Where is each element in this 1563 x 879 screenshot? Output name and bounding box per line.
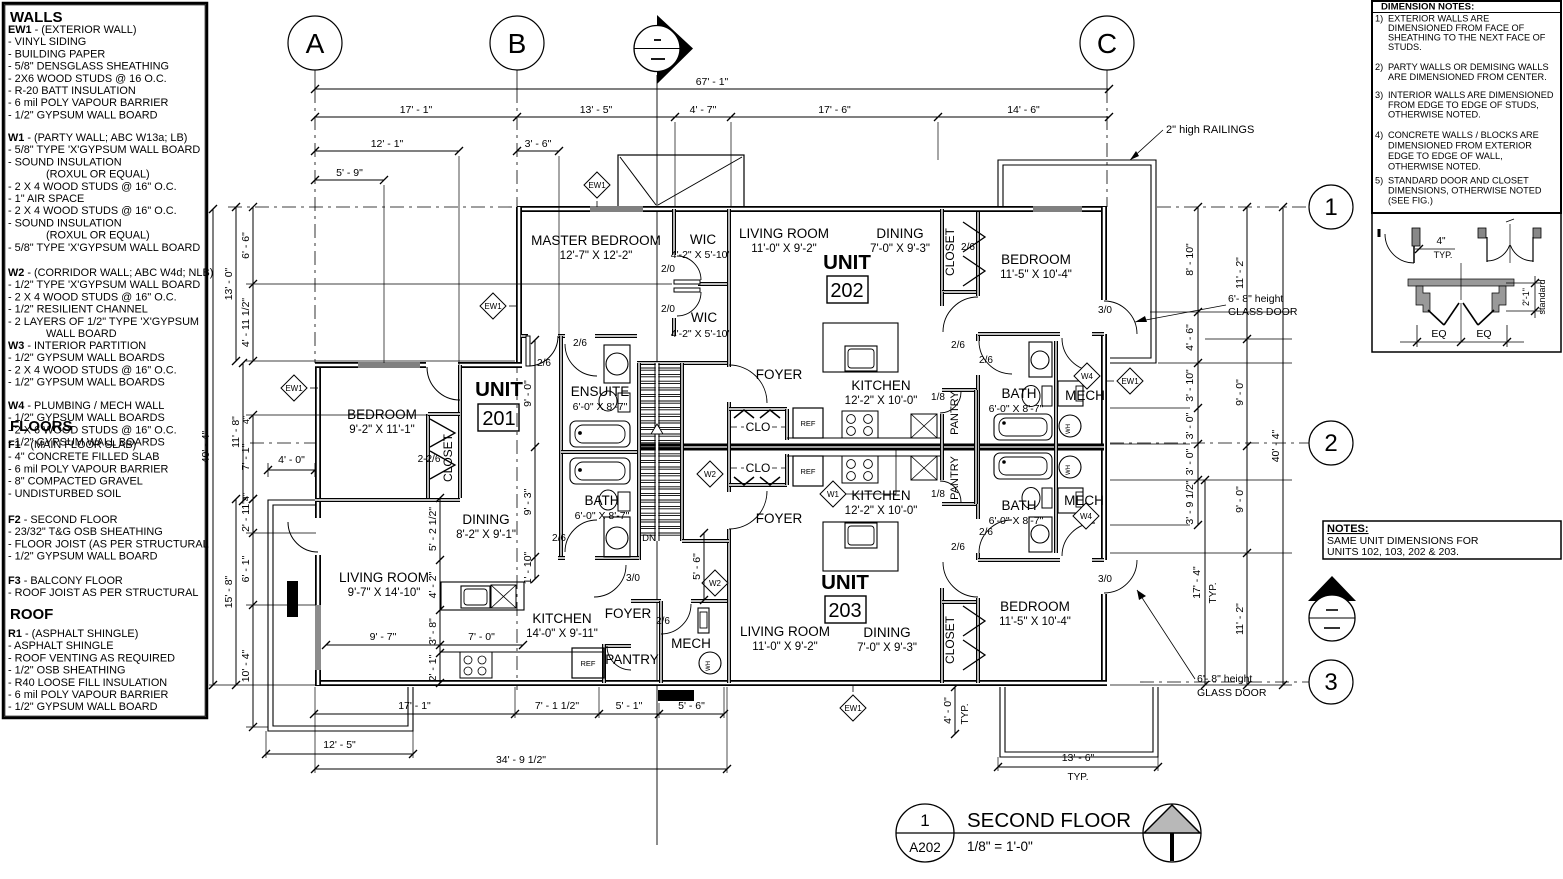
svg-text:- 2 X 4 WOOD STUDS @ 16" O.C.: - 2 X 4 WOOD STUDS @ 16" O.C. — [8, 364, 177, 376]
svg-text:1: 1 — [920, 811, 929, 830]
svg-text:- VINYL SIDING: - VINYL SIDING — [8, 36, 86, 48]
svg-text:3/0: 3/0 — [1098, 574, 1112, 585]
svg-text:- 5/8" DENSGLASS SHEATHING: - 5/8" DENSGLASS SHEATHING — [8, 61, 169, 73]
svg-text:9' - 7": 9' - 7" — [370, 631, 397, 643]
svg-text:3' - 6": 3' - 6" — [525, 138, 552, 150]
svg-text:1/8" = 1'-0": 1/8" = 1'-0" — [967, 839, 1033, 854]
svg-text:EDGE TO EDGE OF WALL,: EDGE TO EDGE OF WALL, — [1388, 151, 1503, 161]
svg-text:DINING: DINING — [462, 512, 509, 527]
svg-text:TYP.: TYP. — [1434, 250, 1453, 260]
svg-text:9' - 0": 9' - 0" — [1234, 486, 1246, 513]
svg-text:- SOUND INSULATION: - SOUND INSULATION — [8, 156, 122, 168]
svg-text:- 4" CONCRETE FILLED SLAB: - 4" CONCRETE FILLED SLAB — [8, 451, 160, 463]
svg-text:KITCHEN: KITCHEN — [851, 488, 910, 503]
svg-text:- 1/2" OSB SHEATHING: - 1/2" OSB SHEATHING — [8, 665, 125, 677]
svg-text:202: 202 — [830, 280, 863, 302]
svg-text:13' - 6": 13' - 6" — [1062, 752, 1095, 764]
svg-text:7' - 0": 7' - 0" — [468, 631, 495, 643]
svg-text:- 1/2" GYPSUM WALL BOARD: - 1/2" GYPSUM WALL BOARD — [8, 109, 158, 121]
svg-text:DIMENSIONED FROM FACE OF: DIMENSIONED FROM FACE OF — [1388, 23, 1525, 33]
svg-text:DN: DN — [642, 533, 656, 544]
svg-text:- 1" AIR SPACE: - 1" AIR SPACE — [8, 193, 84, 205]
svg-text:SHEATHING TO THE NEXT FACE OF: SHEATHING TO THE NEXT FACE OF — [1388, 33, 1546, 43]
svg-text:- 2 LAYERS OF 1/2" TYPE 'X'GYP: - 2 LAYERS OF 1/2" TYPE 'X'GYPSUM — [8, 316, 199, 328]
svg-text:MASTER BEDROOM: MASTER BEDROOM — [531, 233, 661, 248]
svg-text:STUDS.: STUDS. — [1388, 42, 1422, 52]
svg-text:4' - 11 1/2": 4' - 11 1/2" — [240, 298, 252, 348]
svg-text:2/6: 2/6 — [573, 338, 587, 349]
svg-text:DINING: DINING — [876, 226, 923, 241]
svg-text:ENSUITE: ENSUITE — [571, 384, 630, 399]
svg-text:standard: standard — [1537, 279, 1547, 314]
svg-text:REF: REF — [801, 419, 816, 428]
svg-text:5): 5) — [1375, 176, 1383, 186]
svg-text:- 2 X 4 WOOD STUDS @ 16" O.C.: - 2 X 4 WOOD STUDS @ 16" O.C. — [8, 181, 177, 193]
svg-text:WIC: WIC — [691, 310, 717, 325]
svg-text:5' - 2 1/2": 5' - 2 1/2" — [427, 507, 439, 552]
svg-text:GLASS DOOR: GLASS DOOR — [1228, 306, 1298, 318]
svg-text:13' - 5": 13' - 5" — [580, 104, 613, 116]
svg-text:2/6: 2/6 — [951, 542, 965, 553]
svg-text:9' - 3": 9' - 3" — [522, 488, 534, 515]
svg-text:4' - 0": 4' - 0" — [278, 454, 305, 466]
svg-text:2/6: 2/6 — [656, 616, 670, 627]
svg-text:2/6: 2/6 — [979, 355, 993, 366]
svg-text:6' - 1": 6' - 1" — [240, 555, 252, 582]
svg-text:REF: REF — [801, 467, 816, 476]
svg-text:11'-5" X 10'-4": 11'-5" X 10'-4" — [1000, 269, 1072, 281]
svg-text:EW1: EW1 — [844, 704, 862, 713]
svg-text:2'-1": 2'-1" — [1521, 288, 1531, 306]
svg-text:9' - 0": 9' - 0" — [1234, 379, 1246, 406]
svg-text:- 23/32" T&G OSB SHEATHING: - 23/32" T&G OSB SHEATHING — [8, 526, 163, 538]
svg-text:W1: W1 — [827, 490, 840, 499]
svg-text:2/6: 2/6 — [951, 340, 965, 351]
svg-text:12'-2" X 10'-0": 12'-2" X 10'-0" — [845, 505, 918, 517]
svg-text:WH: WH — [1066, 424, 1072, 434]
svg-text:- 1/2" GYPSUM WALL BOARDS: - 1/2" GYPSUM WALL BOARDS — [8, 352, 165, 364]
svg-text:4' - 0": 4' - 0" — [942, 697, 954, 724]
svg-text:CLO: CLO — [746, 420, 771, 434]
svg-text:BATH: BATH — [584, 493, 619, 508]
svg-text:BATH: BATH — [1001, 386, 1036, 401]
svg-text:LIVING ROOM: LIVING ROOM — [740, 624, 830, 639]
svg-text:UNIT: UNIT — [475, 378, 523, 401]
svg-text:- 1/2" RESILIENT CHANNEL: - 1/2" RESILIENT CHANNEL — [8, 304, 148, 316]
svg-text:ARE DIMENSIONED FROM CENTER.: ARE DIMENSIONED FROM CENTER. — [1388, 72, 1547, 82]
svg-text:W4: W4 — [1080, 512, 1093, 521]
svg-text:PANTRY: PANTRY — [949, 456, 961, 500]
svg-text:W3 - INTERIOR PARTITION: W3 - INTERIOR PARTITION — [8, 340, 146, 352]
svg-text:EW1: EW1 — [588, 181, 606, 190]
svg-text:- FLOOR JOIST (AS PER STRUCTUR: - FLOOR JOIST (AS PER STRUCTURAL — [8, 538, 209, 550]
svg-text:3' - 9 1/2": 3' - 9 1/2" — [1184, 480, 1196, 525]
svg-text:BEDROOM: BEDROOM — [1001, 252, 1071, 267]
svg-text:- R40 LOOSE FILL INSULATION: - R40 LOOSE FILL INSULATION — [8, 677, 167, 689]
svg-text:3/0: 3/0 — [1098, 305, 1112, 316]
svg-text:4' - 6": 4' - 6" — [1184, 324, 1196, 351]
svg-text:- 6 mil POLY VAPOUR BARRIER: - 6 mil POLY VAPOUR BARRIER — [8, 463, 169, 475]
svg-text:6'-0" X 8'-7": 6'-0" X 8'-7" — [989, 403, 1044, 415]
svg-text:15' - 8": 15' - 8" — [223, 575, 235, 608]
svg-text:- 2 X 4 WOOD STUDS @ 16" O.C.: - 2 X 4 WOOD STUDS @ 16" O.C. — [8, 205, 177, 217]
svg-text:17' - 6": 17' - 6" — [818, 104, 851, 116]
svg-text:2/6: 2/6 — [552, 533, 566, 544]
svg-text:11' - 2": 11' - 2" — [1234, 603, 1246, 635]
svg-text:5' - 9": 5' - 9" — [336, 167, 363, 179]
svg-text:MECH: MECH — [1064, 493, 1104, 508]
svg-text:12'-7" X 12'-2": 12'-7" X 12'-2" — [560, 250, 633, 262]
svg-text:4": 4" — [241, 493, 251, 501]
svg-text:GLASS DOOR: GLASS DOOR — [1197, 687, 1267, 699]
svg-text:- 6 mil POLY VAPOUR BARRIER: - 6 mil POLY VAPOUR BARRIER — [8, 97, 169, 109]
svg-text:7'-0" X 9'-3": 7'-0" X 9'-3" — [857, 642, 917, 654]
svg-text:A: A — [306, 28, 325, 59]
svg-text:- ROOF JOIST AS PER STRUCTURAL: - ROOF JOIST AS PER STRUCTURAL — [8, 587, 198, 599]
svg-text:- SOUND INSULATION: - SOUND INSULATION — [8, 217, 122, 229]
svg-text:W2: W2 — [709, 579, 722, 588]
svg-text:1/8: 1/8 — [931, 392, 945, 403]
svg-text:BATH: BATH — [1001, 498, 1036, 513]
svg-text:ROOF: ROOF — [10, 606, 53, 623]
svg-text:BEDROOM: BEDROOM — [1000, 599, 1070, 614]
svg-text:LIVING ROOM: LIVING ROOM — [339, 570, 429, 585]
svg-text:- R-20 BATT INSULATION: - R-20 BATT INSULATION — [8, 85, 136, 97]
svg-text:FOYER: FOYER — [756, 367, 803, 382]
svg-text:9' - 0": 9' - 0" — [522, 380, 534, 407]
svg-text:8'-2" X 9'-1": 8'-2" X 9'-1" — [456, 529, 516, 541]
svg-text:- 1/2" GYPSUM WALL BOARDS: - 1/2" GYPSUM WALL BOARDS — [8, 377, 165, 389]
svg-text:1): 1) — [1375, 14, 1383, 24]
svg-text:DIMENSIONED FROM EXTERIOR: DIMENSIONED FROM EXTERIOR — [1388, 141, 1532, 151]
svg-text:NOTES:: NOTES: — [1327, 523, 1369, 535]
svg-text:OTHERWISE NOTED.: OTHERWISE NOTED. — [1388, 110, 1481, 120]
svg-text:WH: WH — [1066, 465, 1072, 475]
svg-text:17' - 1": 17' - 1" — [400, 104, 433, 116]
svg-text:CONCRETE WALLS / BLOCKS ARE: CONCRETE WALLS / BLOCKS ARE — [1388, 130, 1539, 140]
svg-text:7' - 1": 7' - 1" — [240, 443, 252, 470]
svg-text:6' - 6": 6' - 6" — [240, 232, 252, 259]
svg-text:203: 203 — [828, 600, 861, 622]
svg-text:CLOSET: CLOSET — [943, 615, 957, 664]
svg-text:11' - 2": 11' - 2" — [1234, 257, 1246, 289]
svg-text:9'-7" X 14'-10": 9'-7" X 14'-10" — [348, 587, 421, 599]
svg-text:12' - 5": 12' - 5" — [323, 739, 356, 751]
svg-text:FOYER: FOYER — [756, 511, 803, 526]
svg-text:5' - 1": 5' - 1" — [616, 700, 643, 712]
svg-text:2' - 1": 2' - 1" — [427, 654, 439, 681]
svg-text:- 1/2" GYPSUM WALL BOARD: - 1/2" GYPSUM WALL BOARD — [8, 551, 158, 563]
svg-text:MECH: MECH — [671, 636, 711, 651]
svg-text:6'-0" X 8'-7": 6'-0" X 8'-7" — [989, 515, 1044, 527]
svg-text:3' - 8": 3' - 8" — [427, 618, 439, 645]
svg-text:2/0: 2/0 — [661, 264, 675, 275]
svg-text:2/6: 2/6 — [979, 527, 993, 538]
svg-text:40' - 4": 40' - 4" — [200, 430, 212, 463]
svg-text:11'-0" X 9'-2": 11'-0" X 9'-2" — [752, 641, 817, 653]
svg-text:CLO: CLO — [746, 461, 771, 475]
svg-text:40' - 4": 40' - 4" — [1270, 429, 1282, 462]
svg-text:6'-0" X 8'-7": 6'-0" X 8'-7" — [573, 401, 628, 413]
svg-text:4): 4) — [1375, 130, 1383, 140]
svg-text:F3 - BALCONY FLOOR: F3 - BALCONY FLOOR — [8, 575, 123, 587]
svg-text:F1 - (MAIN FLOOR SLAB): F1 - (MAIN FLOOR SLAB) — [8, 439, 136, 451]
svg-text:TYP.: TYP. — [1208, 583, 1219, 604]
svg-text:- 5/8" TYPE 'X'GYPSUM WALL BOA: - 5/8" TYPE 'X'GYPSUM WALL BOARD — [8, 242, 200, 254]
svg-text:2/6: 2/6 — [961, 242, 975, 253]
svg-text:EW1 - (EXTERIOR WALL): EW1 - (EXTERIOR WALL) — [8, 24, 137, 36]
svg-text:PARTY WALLS OR DEMISING WALLS: PARTY WALLS OR DEMISING WALLS — [1388, 62, 1549, 72]
svg-text:KITCHEN: KITCHEN — [851, 378, 910, 393]
svg-text:2/6: 2/6 — [537, 358, 551, 369]
svg-text:- ROOF VENTING AS REQUIRED: - ROOF VENTING AS REQUIRED — [8, 652, 175, 664]
svg-text:7'-0" X 9'-3": 7'-0" X 9'-3" — [870, 243, 930, 255]
svg-text:WH: WH — [706, 661, 712, 671]
svg-text:2' - 11": 2' - 11" — [240, 500, 252, 532]
svg-text:11'-5" X 10'-4": 11'-5" X 10'-4" — [999, 616, 1071, 628]
svg-text:2-2/6: 2-2/6 — [418, 454, 441, 465]
svg-text:3' - 0": 3' - 0" — [1184, 412, 1196, 439]
svg-text:9'-2" X 11'-1": 9'-2" X 11'-1" — [349, 424, 414, 436]
svg-text:3: 3 — [1324, 669, 1337, 696]
svg-text:14'-0" X 9'-11": 14'-0" X 9'-11" — [526, 628, 598, 640]
svg-text:2): 2) — [1375, 62, 1383, 72]
svg-text:PANTRY: PANTRY — [605, 652, 659, 667]
svg-text:(ROXUL OR EQUAL): (ROXUL OR EQUAL) — [46, 169, 150, 181]
svg-text:INTERIOR WALLS ARE DIMENSIONED: INTERIOR WALLS ARE DIMENSIONED — [1388, 90, 1554, 100]
svg-text:12' - 1": 12' - 1" — [371, 138, 404, 150]
svg-text:3/0: 3/0 — [626, 573, 640, 584]
svg-text:2" high RAILINGS: 2" high RAILINGS — [1166, 124, 1254, 136]
svg-text:- 2X6 WOOD STUDS @ 16 O.C.: - 2X6 WOOD STUDS @ 16 O.C. — [8, 73, 167, 85]
svg-text:3' - 0": 3' - 0" — [1184, 448, 1196, 475]
svg-text:4' - 7": 4' - 7" — [690, 104, 717, 116]
svg-text:10' - 4": 10' - 4" — [240, 649, 252, 682]
svg-text:3): 3) — [1375, 90, 1383, 100]
svg-text:11'-0" X 9'-2": 11'-0" X 9'-2" — [751, 243, 816, 255]
svg-text:- 5/8" TYPE 'X'GYPSUM WALL BOA: - 5/8" TYPE 'X'GYPSUM WALL BOARD — [8, 144, 200, 156]
svg-text:EW1: EW1 — [285, 384, 303, 393]
svg-text:C: C — [1097, 28, 1117, 59]
svg-text:STANDARD DOOR AND CLOSET: STANDARD DOOR AND CLOSET — [1388, 176, 1529, 186]
svg-text:KITCHEN: KITCHEN — [532, 611, 591, 626]
svg-text:UNIT: UNIT — [821, 571, 869, 594]
svg-text:(ROXUL OR EQUAL): (ROXUL OR EQUAL) — [46, 230, 150, 242]
svg-text:17' - 4": 17' - 4" — [1191, 566, 1203, 599]
svg-text:2/0: 2/0 — [661, 304, 675, 315]
svg-text:F2 - SECOND FLOOR: F2 - SECOND FLOOR — [8, 514, 118, 526]
svg-text:W2 - (CORRIDOR WALL; ABC W4d;: W2 - (CORRIDOR WALL; ABC W4d; NLB) — [8, 267, 213, 279]
svg-text:CLOSET: CLOSET — [943, 227, 957, 276]
svg-text:5' - 6": 5' - 6" — [678, 700, 705, 712]
svg-text:- 8" COMPACTED GRAVEL: - 8" COMPACTED GRAVEL — [8, 476, 143, 488]
svg-text:4'-2" X 5'-10": 4'-2" X 5'-10" — [671, 328, 732, 340]
svg-text:MECH: MECH — [1065, 388, 1105, 403]
svg-text:EW1: EW1 — [1121, 377, 1139, 386]
svg-text:FLOORS: FLOORS — [10, 418, 73, 435]
svg-text:14' - 6": 14' - 6" — [1007, 104, 1040, 116]
svg-text:SECOND FLOOR: SECOND FLOOR — [967, 809, 1131, 832]
svg-text:CLOSET: CLOSET — [441, 433, 455, 482]
svg-text:B: B — [508, 28, 527, 59]
svg-text:REF: REF — [581, 659, 596, 668]
svg-text:8' - 10": 8' - 10" — [1184, 243, 1196, 276]
svg-text:(SEE FIG.): (SEE FIG.) — [1388, 196, 1433, 206]
svg-text:OTHERWISE NOTED.: OTHERWISE NOTED. — [1388, 162, 1481, 172]
svg-text:4": 4" — [1436, 236, 1446, 247]
svg-text:7' - 1 1/2": 7' - 1 1/2" — [535, 700, 580, 712]
svg-text:W4: W4 — [1081, 372, 1094, 381]
svg-text:DIMENSION NOTES:: DIMENSION NOTES: — [1381, 2, 1474, 13]
svg-text:UNITS 102, 103, 202 & 203.: UNITS 102, 103, 202 & 203. — [1327, 546, 1459, 558]
svg-text:13' - 0": 13' - 0" — [223, 267, 235, 300]
svg-text:FOYER: FOYER — [605, 606, 652, 621]
svg-text:EW1: EW1 — [484, 302, 502, 311]
svg-text:1: 1 — [1324, 194, 1337, 221]
svg-text:4' - 2": 4' - 2" — [427, 571, 439, 598]
svg-text:TYP.: TYP. — [960, 704, 971, 725]
svg-text:201: 201 — [482, 408, 515, 430]
svg-text:- 1/2" GYPSUM WALL BOARD: - 1/2" GYPSUM WALL BOARD — [8, 701, 158, 713]
svg-text:4'-2" X 5'-10": 4'-2" X 5'-10" — [671, 249, 732, 261]
svg-text:6'-0" X 8'-7": 6'-0" X 8'-7" — [575, 510, 630, 522]
svg-text:W4 - PLUMBING / MECH WALL: W4 - PLUMBING / MECH WALL — [8, 400, 164, 412]
svg-text:WIC: WIC — [690, 232, 716, 247]
svg-text:R1 - (ASPHALT SHINGLE): R1 - (ASPHALT SHINGLE) — [8, 628, 138, 640]
svg-text:17' - 1": 17' - 1" — [398, 700, 431, 712]
svg-text:5' - 6": 5' - 6" — [691, 553, 703, 580]
svg-text:FROM EDGE TO EDGE OF STUDS,: FROM EDGE TO EDGE OF STUDS, — [1388, 100, 1539, 110]
svg-text:BEDROOM: BEDROOM — [347, 407, 417, 422]
svg-text:- UNDISTURBED SOIL: - UNDISTURBED SOIL — [8, 488, 121, 500]
svg-text:DINING: DINING — [863, 625, 910, 640]
svg-text:- 6 mil POLY VAPOUR BARRIER: - 6 mil POLY VAPOUR BARRIER — [8, 689, 169, 701]
svg-text:- BUILDING PAPER: - BUILDING PAPER — [8, 48, 105, 60]
svg-text:34' - 9 1/2": 34' - 9 1/2" — [496, 754, 546, 766]
svg-text:A202: A202 — [909, 840, 941, 855]
svg-text:6'-.8" height: 6'-.8" height — [1197, 673, 1252, 685]
svg-text:67' - 1": 67' - 1" — [696, 76, 729, 88]
svg-text:1' - 10": 1' - 10" — [522, 551, 534, 584]
svg-text:EXTERIOR WALLS ARE: EXTERIOR WALLS ARE — [1388, 14, 1489, 24]
svg-text:LIVING ROOM: LIVING ROOM — [739, 226, 829, 241]
svg-text:3' - 10": 3' - 10" — [1184, 369, 1196, 402]
svg-text:6'- 8" height: 6'- 8" height — [1228, 293, 1283, 305]
svg-text:WALL BOARD: WALL BOARD — [46, 328, 117, 340]
svg-text:4": 4" — [241, 416, 251, 424]
svg-text:1/8: 1/8 — [931, 489, 945, 500]
svg-text:- 1/2" TYPE 'X'GYPSUM WALL BOA: - 1/2" TYPE 'X'GYPSUM WALL BOARD — [8, 279, 200, 291]
svg-text:TYP.: TYP. — [1068, 772, 1089, 783]
svg-text:EQ: EQ — [1431, 328, 1446, 340]
svg-text:- 2 X 4 WOOD STUDS @ 16" O.C.: - 2 X 4 WOOD STUDS @ 16" O.C. — [8, 291, 177, 303]
svg-text:W2: W2 — [704, 470, 717, 479]
svg-text:W1 - (PARTY WALL; ABC W13a; LB: W1 - (PARTY WALL; ABC W13a; LB) — [8, 132, 187, 144]
svg-text:- ASPHALT SHINGLE: - ASPHALT SHINGLE — [8, 640, 114, 652]
svg-text:2: 2 — [1324, 430, 1337, 457]
svg-text:DIMENSIONS, OTHERWISE NOTED: DIMENSIONS, OTHERWISE NOTED — [1388, 186, 1542, 196]
svg-text:PANTRY: PANTRY — [949, 391, 961, 435]
svg-text:EQ: EQ — [1476, 328, 1491, 340]
svg-text:UNIT: UNIT — [823, 251, 871, 274]
svg-text:12'-2" X 10'-0": 12'-2" X 10'-0" — [845, 395, 918, 407]
